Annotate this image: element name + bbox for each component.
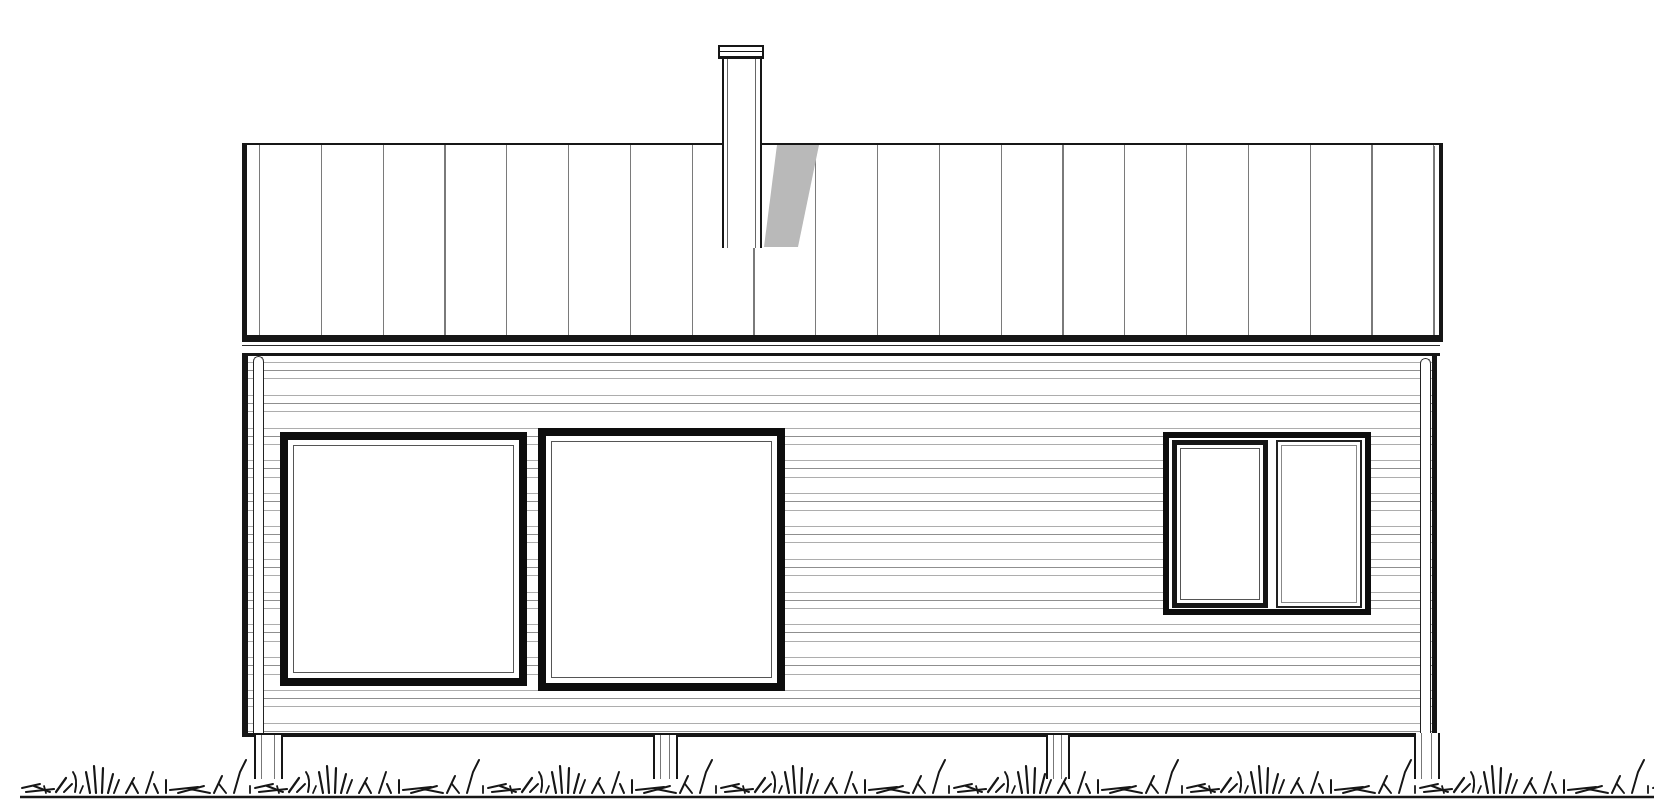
elevation-drawing xyxy=(0,0,1670,800)
window-middle xyxy=(538,428,785,691)
grass-strip xyxy=(20,748,1654,800)
roof-panel xyxy=(242,143,1443,338)
window-right-fixed-pane xyxy=(1276,440,1362,608)
window-middle-glass xyxy=(551,441,772,678)
window-left xyxy=(280,432,527,686)
gutter xyxy=(242,345,1440,356)
window-right-operable-sash xyxy=(1172,440,1268,608)
left-downspout xyxy=(253,356,264,736)
chimney-cap xyxy=(718,45,764,59)
window-left-glass xyxy=(293,445,514,673)
window-right-sash-glass xyxy=(1180,448,1260,600)
grass-tufts xyxy=(20,748,1654,800)
chimney-flue xyxy=(722,59,762,248)
roof-eave-edge xyxy=(242,335,1443,342)
window-right-fixed-glass xyxy=(1281,445,1357,603)
right-downspout xyxy=(1420,358,1431,733)
roof-right-edge-inner-line xyxy=(1434,146,1435,336)
wall-base-line xyxy=(242,733,1437,737)
